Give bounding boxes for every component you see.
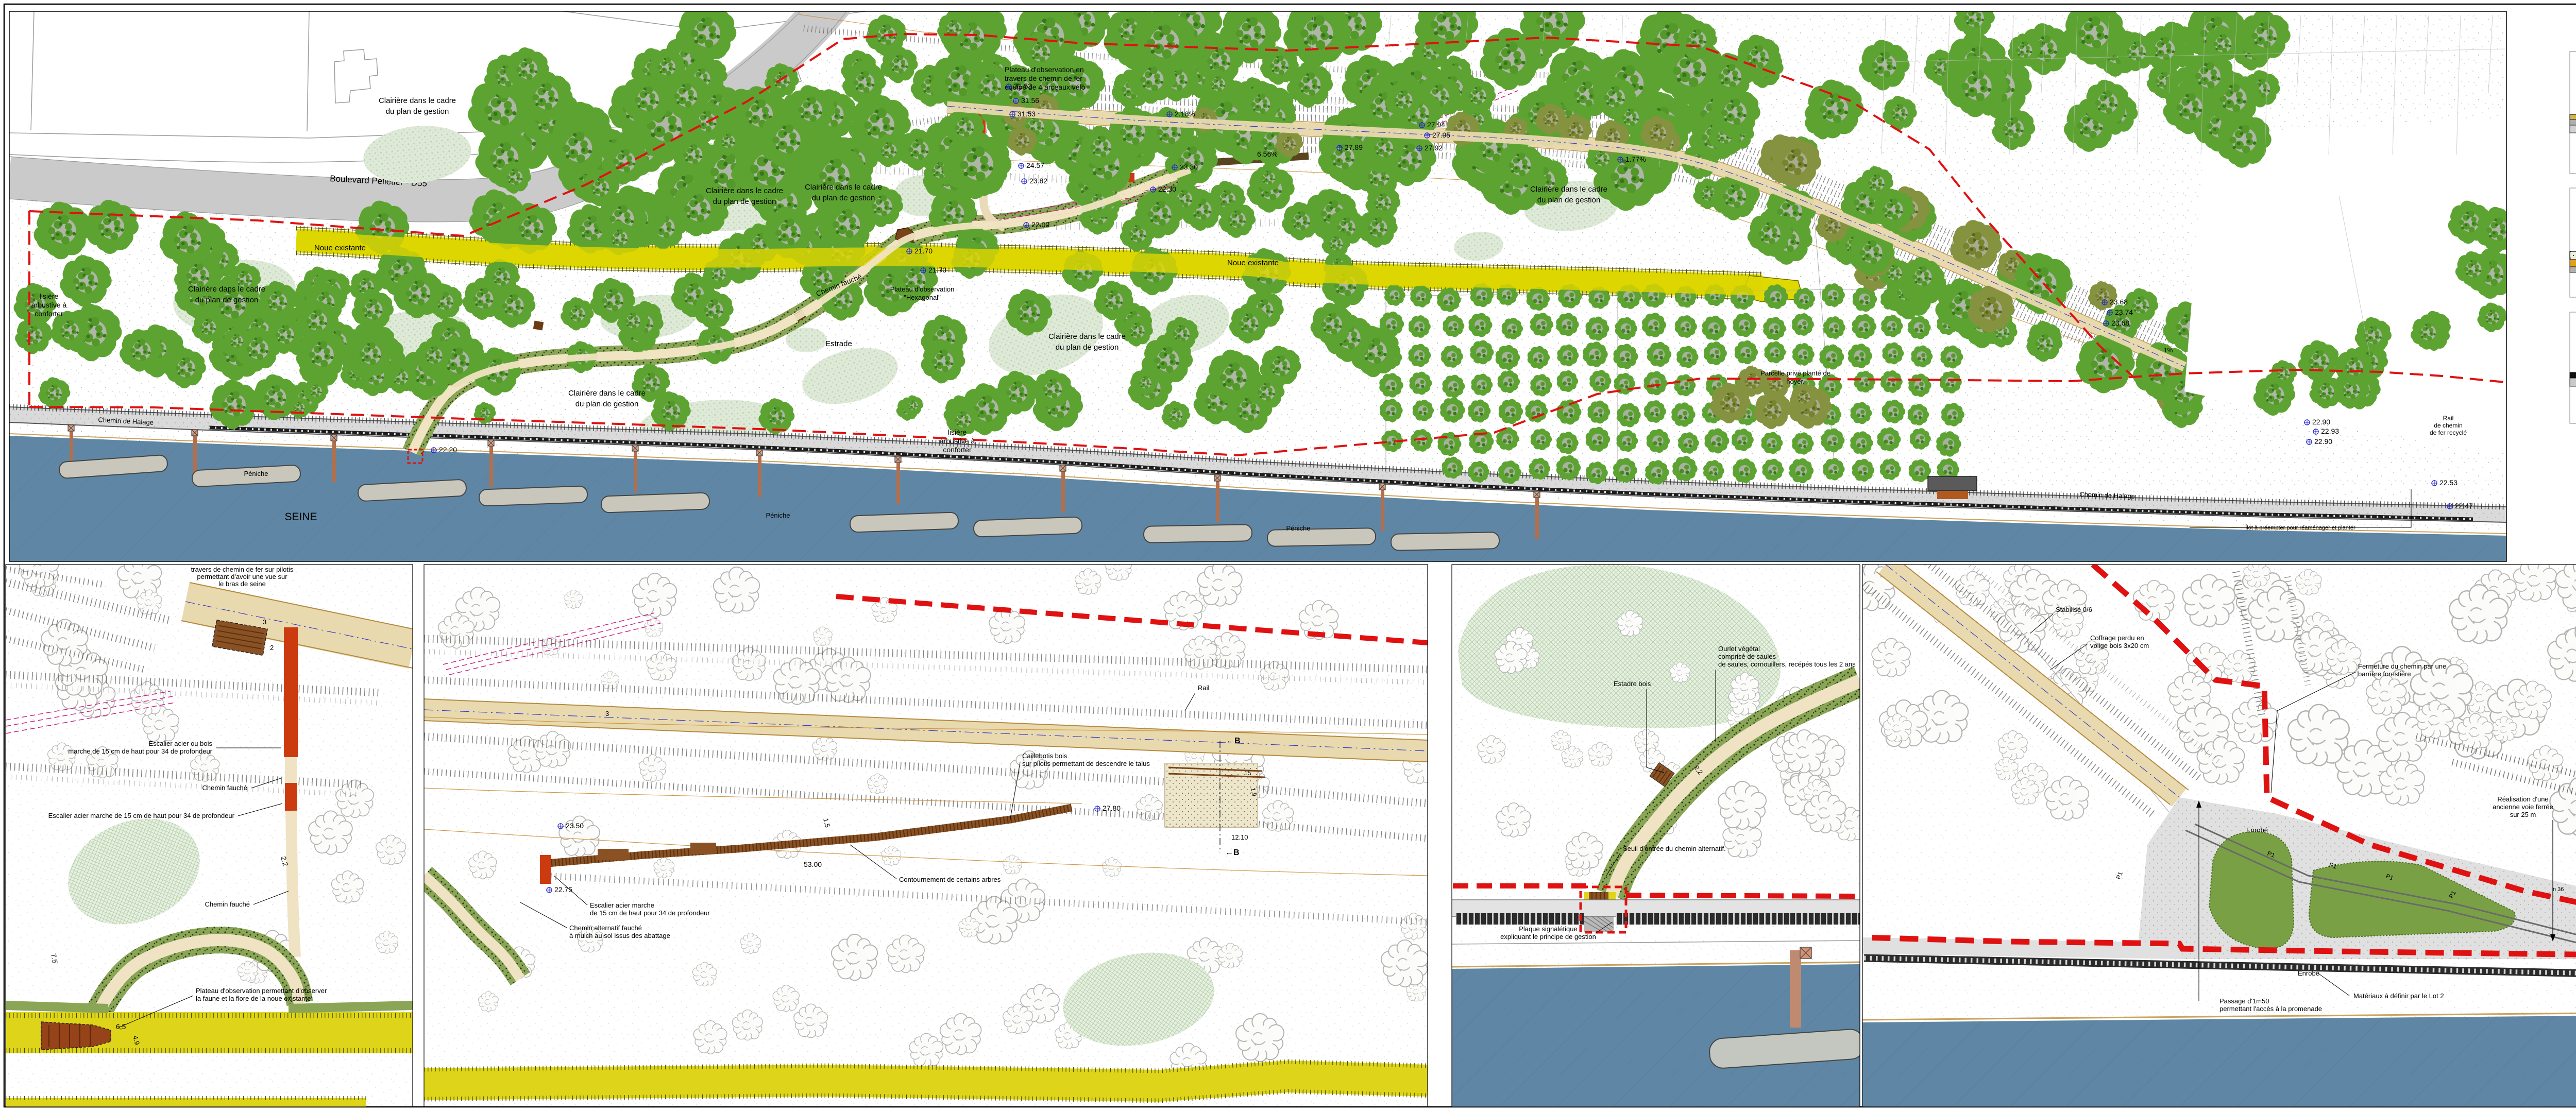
svg-text:22.30: 22.30 — [1158, 185, 1176, 193]
svg-text:arbustive à: arbustive à — [31, 301, 67, 309]
svg-text:22.75: 22.75 — [554, 885, 572, 894]
svg-text:21.70: 21.70 — [928, 266, 946, 274]
svg-text:Plateau d'observation en: Plateau d'observation en — [1005, 65, 1084, 74]
svg-text:31.53: 31.53 — [1018, 110, 1036, 118]
svg-text:Clairière dans le cadre: Clairière dans le cadre — [568, 389, 646, 398]
svg-text:Caillebotis bois: Caillebotis bois — [1022, 752, 1067, 760]
svg-text:Escalier acier ou bois: Escalier acier ou bois — [148, 740, 212, 747]
svg-text:27.89: 27.89 — [1345, 143, 1363, 151]
svg-text:permettant d'avoir une vue sur: permettant d'avoir une vue sur — [197, 573, 287, 580]
svg-text:6,5: 6,5 — [116, 1022, 126, 1031]
svg-text:3: 3 — [605, 710, 609, 717]
svg-text:de 15 cm de haut pour 34 de pr: de 15 cm de haut pour 34 de profondeur — [590, 909, 710, 917]
svg-text:7.5: 7.5 — [49, 953, 59, 964]
svg-text:comprisé de saules: comprisé de saules — [1718, 653, 1776, 660]
svg-text:du plan de gestion: du plan de gestion — [1056, 343, 1119, 352]
svg-text:la faune et la flore de la nou: la faune et la flore de la noue existant… — [196, 995, 311, 1002]
svg-text:23.68: 23.68 — [2110, 298, 2128, 306]
svg-text:31.56: 31.56 — [1021, 96, 1039, 105]
svg-text:du plan de gestion: du plan de gestion — [195, 296, 259, 304]
svg-text:15: 15 — [1244, 770, 1251, 777]
svg-text:Escalier acier marche de 15 cm: Escalier acier marche de 15 cm de haut p… — [48, 812, 235, 819]
svg-text:à mulch au sol issus des abatt: à mulch au sol issus des abattage — [569, 932, 670, 939]
svg-text:Ourlet végétal: Ourlet végétal — [1718, 645, 1760, 653]
svg-text:Plateau d'observation: Plateau d'observation — [890, 285, 955, 293]
svg-text:Clairière dans le cadre: Clairière dans le cadre — [379, 96, 456, 105]
svg-text:conforter: conforter — [35, 310, 63, 318]
svg-text:23.50: 23.50 — [566, 822, 584, 830]
svg-text:Noue existante: Noue existante — [314, 244, 366, 252]
svg-text:22.47: 22.47 — [2455, 502, 2473, 510]
svg-text:Passage d'1m50: Passage d'1m50 — [2219, 997, 2269, 1005]
svg-text:noyer.: noyer. — [1786, 378, 1804, 385]
svg-text:22.93: 22.93 — [2321, 427, 2339, 435]
svg-text:"Hexagonal": "Hexagonal" — [904, 294, 941, 301]
svg-text:Stabilisé 0/6: Stabilisé 0/6 — [2056, 606, 2092, 613]
svg-text:Fermeture du chemin par une: Fermeture du chemin par une — [2358, 662, 2446, 670]
svg-text:lisière: lisière — [948, 428, 967, 436]
svg-text:22.53: 22.53 — [2439, 478, 2458, 487]
svg-text:1.77%: 1.77% — [1625, 155, 1646, 163]
svg-text:Seuil d'entrée du chemin alter: Seuil d'entrée du chemin alternatif. — [1623, 845, 1726, 852]
svg-text:de fer recyclé: de fer recyclé — [2430, 429, 2467, 436]
svg-text:sur 25 m: sur 25 m — [2510, 811, 2536, 818]
svg-text:le bras de seine: le bras de seine — [218, 580, 266, 588]
svg-text:du plan de gestion: du plan de gestion — [575, 400, 639, 408]
svg-text:12.10: 12.10 — [1231, 833, 1248, 841]
svg-text:Rail: Rail — [1198, 684, 1210, 692]
svg-text:2.18%: 2.18% — [1175, 110, 1195, 118]
svg-text:du plan de gestion: du plan de gestion — [812, 194, 875, 202]
svg-text:barrière forestière: barrière forestière — [2358, 670, 2411, 678]
svg-text:expliquant le principe de gest: expliquant le principe de gestion — [1500, 933, 1596, 941]
svg-text:lisière: lisière — [40, 292, 59, 300]
svg-text:travers de chemin de fer sur p: travers de chemin de fer sur pilotis — [191, 566, 294, 573]
svg-text:24.57: 24.57 — [1026, 161, 1044, 169]
svg-text:Clairière dans le cadre: Clairière dans le cadre — [805, 183, 882, 192]
svg-text:conforter: conforter — [943, 446, 972, 454]
svg-text:de saules, cornouillers, recép: de saules, cornouillers, recépés tous le… — [1718, 660, 1856, 668]
svg-text:27.94: 27.94 — [1427, 121, 1445, 129]
svg-text:Péniche: Péniche — [766, 511, 790, 519]
svg-text:permettant l'accès à la promen: permettant l'accès à la promenade — [2219, 1005, 2322, 1013]
svg-text:Coffrage perdu en: Coffrage perdu en — [2090, 634, 2144, 642]
svg-text:du plan de gestion: du plan de gestion — [713, 197, 776, 206]
svg-text:de chemin: de chemin — [2434, 422, 2462, 429]
svg-text:sur pilotis permettant de desc: sur pilotis permettant de descendre le t… — [1022, 760, 1150, 767]
svg-text:Clairière dans le cadre: Clairière dans le cadre — [1530, 185, 1607, 194]
svg-text:Plaque signalétique: Plaque signalétique — [1519, 925, 1577, 933]
svg-text:Noue existante: Noue existante — [1227, 259, 1279, 267]
svg-text:3: 3 — [263, 618, 266, 626]
svg-text:Escalier acier marche: Escalier acier marche — [590, 901, 654, 909]
svg-text:1%: 1% — [2164, 347, 2173, 354]
svg-text:27.92: 27.92 — [1425, 144, 1443, 152]
svg-text:21.70: 21.70 — [914, 247, 933, 255]
svg-text:Chemin fauché: Chemin fauché — [202, 784, 247, 792]
svg-text:Chemin alternatif fauché: Chemin alternatif fauché — [569, 924, 642, 932]
svg-text:6.56%: 6.56% — [1257, 150, 1278, 158]
svg-text:Clairière dans le cadre: Clairière dans le cadre — [706, 186, 783, 195]
svg-text:n 36: n 36 — [2553, 886, 2564, 893]
svg-text:53.00: 53.00 — [804, 860, 822, 868]
svg-text:Contournement de certains arbr: Contournement de certains arbres — [899, 876, 1001, 883]
svg-text:23.82: 23.82 — [1029, 177, 1047, 185]
svg-text:←B: ←B — [1225, 848, 1240, 857]
svg-text:2: 2 — [270, 644, 274, 652]
svg-text:Parcelle privé planté de: Parcelle privé planté de — [1760, 369, 1831, 377]
svg-text:Clairière dans le cadre: Clairière dans le cadre — [188, 285, 265, 294]
svg-text:du plan de gestion: du plan de gestion — [1537, 196, 1601, 204]
svg-text:ancienne voie ferrée: ancienne voie ferrée — [2493, 803, 2553, 811]
svg-text:22.20: 22.20 — [439, 446, 457, 454]
svg-text:1.9: 1.9 — [1249, 787, 1258, 797]
svg-text:Enrobé: Enrobé — [2246, 826, 2268, 834]
svg-text:31.53: 31.53 — [1014, 82, 1032, 90]
svg-text:travers de chemin de fer: travers de chemin de fer — [1005, 74, 1082, 82]
svg-text:marche de 15 cm de haut pour 3: marche de 15 cm de haut pour 34 de profo… — [68, 747, 212, 755]
svg-text:Péniche: Péniche — [1286, 524, 1311, 532]
svg-text:volige bois 3x20 cm: volige bois 3x20 cm — [2090, 642, 2149, 649]
svg-text:Rail: Rail — [2443, 415, 2454, 422]
svg-text:Estrade: Estrade — [825, 339, 852, 348]
svg-text:SEINE: SEINE — [284, 511, 317, 523]
svg-text:Chemin fauché: Chemin fauché — [205, 900, 250, 908]
svg-text:Enrobé: Enrobé — [2298, 969, 2319, 977]
svg-text:22.00: 22.00 — [1031, 220, 1049, 229]
svg-text:←B: ←B — [1226, 737, 1241, 745]
svg-text:23.74: 23.74 — [2115, 308, 2133, 316]
svg-text:23.68: 23.68 — [2111, 319, 2129, 327]
svg-text:Plateau d'observation permetta: Plateau d'observation permettant d'obser… — [196, 987, 327, 995]
svg-text:Réalisation d'une: Réalisation d'une — [2497, 795, 2548, 803]
svg-text:27.80: 27.80 — [1103, 804, 1121, 812]
svg-text:du plan de gestion: du plan de gestion — [386, 107, 449, 116]
svg-text:23.30: 23.30 — [1180, 163, 1198, 171]
svg-text:Matériaux à définir par le Lot: Matériaux à définir par le Lot 2 — [2353, 992, 2444, 1000]
svg-text:arbustive à: arbustive à — [940, 437, 975, 445]
svg-text:Péniche: Péniche — [244, 470, 268, 477]
svg-text:Estadre bois: Estadre bois — [1614, 680, 1651, 688]
svg-text:22.90: 22.90 — [2312, 418, 2330, 426]
svg-text:Clairière dans le cadre: Clairière dans le cadre — [1048, 332, 1126, 341]
svg-text:27.95: 27.95 — [1432, 131, 1450, 139]
svg-text:22.90: 22.90 — [2314, 437, 2332, 446]
